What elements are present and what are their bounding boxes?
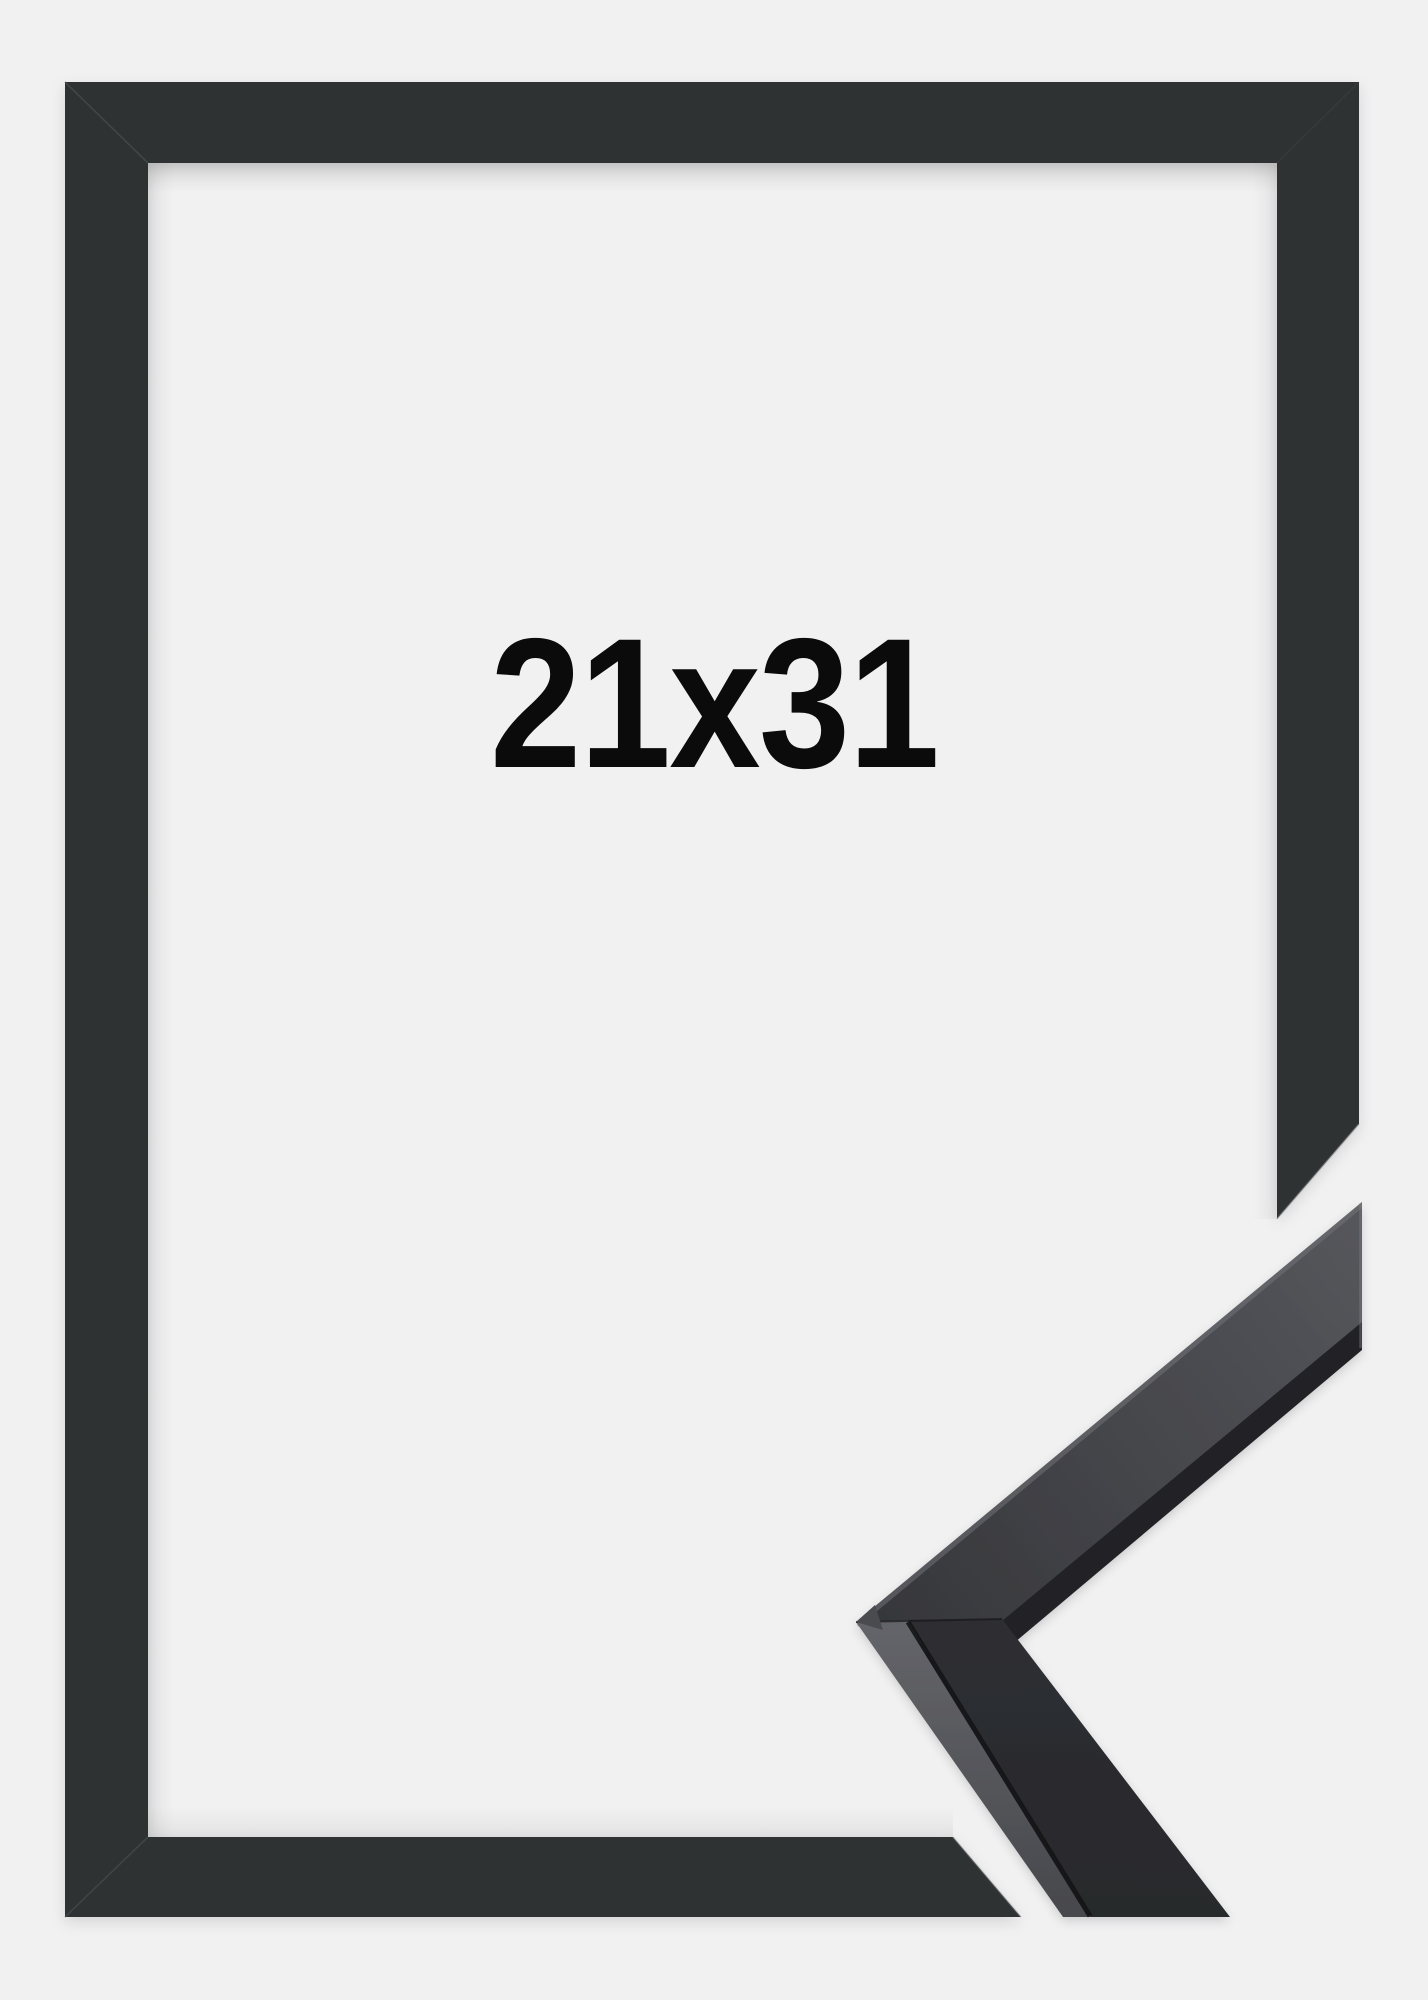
frame-opening-shadow-bottom	[148, 1807, 953, 1837]
frame-opening-shadow-top	[148, 163, 1277, 193]
frame-product-image: 21x31	[0, 0, 1428, 2000]
photo-background	[0, 0, 1428, 2000]
frame-opening-shadow-right	[1251, 163, 1277, 1219]
frame-opening-shadow-left	[148, 163, 174, 1837]
size-label: 21x31	[490, 601, 938, 807]
product-photo-canvas: 21x31	[0, 0, 1428, 2000]
